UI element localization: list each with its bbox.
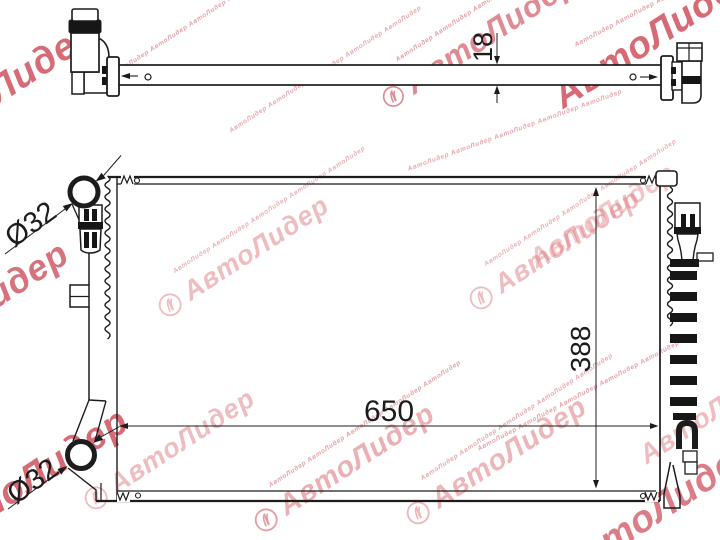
top-assembly: 18 (69, 9, 702, 103)
bar-hole-right (630, 74, 636, 80)
radiator-technical-drawing: АвтоЛидер АвтоЛидер АвтоЛидер АвтоЛидер … (0, 0, 720, 540)
right-tank-ribs (670, 271, 697, 420)
radiator-front-view: 650 388 Ø32 Ø (0, 156, 713, 511)
top-bar (117, 65, 663, 85)
left-header-seam (105, 176, 110, 339)
drain-fitting (679, 423, 697, 474)
left-flange (107, 57, 119, 96)
outlet-pipe-opening (68, 442, 95, 469)
filler-cap (72, 9, 98, 21)
left-tank (68, 178, 107, 501)
right-flange (661, 56, 673, 100)
dim-388: 388 (565, 187, 599, 489)
neck-foot (72, 72, 84, 94)
right-tank-fitting (670, 203, 713, 267)
dia-32-bottom: Ø32 (1, 427, 119, 511)
top-pipe-label: Ø32 (0, 196, 62, 254)
dim-650: 650 (119, 395, 659, 429)
bottom-pipe-label: Ø32 (1, 453, 64, 511)
dim-388-label: 388 (565, 326, 596, 373)
radiator-drawing-svg: 18 (0, 0, 720, 540)
outlet-pipe-bottom (68, 400, 107, 501)
bar-hole-left (145, 74, 151, 80)
right-header-seam (668, 187, 673, 326)
right-tank (656, 171, 713, 508)
inlet-pipe-opening (70, 178, 98, 206)
filler-neck (69, 9, 109, 94)
dia-32-top: Ø32 (0, 156, 121, 255)
inlet-pipe-top (70, 178, 103, 253)
filler-cap-band (69, 20, 101, 33)
elbow-clip (671, 67, 676, 74)
right-elbow-pipe (671, 43, 702, 103)
neck-body (71, 33, 99, 72)
right-tank-foot (664, 462, 680, 508)
dim-650-label: 650 (364, 395, 414, 428)
elbow-clip (671, 79, 676, 86)
dim-18-label: 18 (468, 32, 498, 62)
elbow-band (682, 76, 701, 84)
right-tank-cap (656, 171, 677, 186)
